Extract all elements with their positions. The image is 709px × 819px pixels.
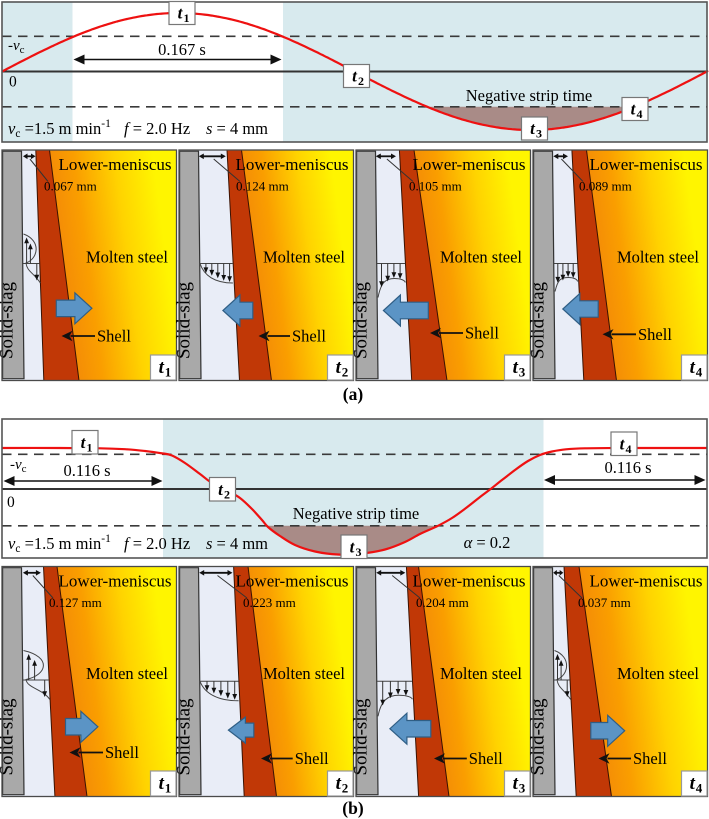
svg-text:4: 4	[696, 781, 703, 796]
svg-text:0.204 mm: 0.204 mm	[416, 595, 469, 610]
svg-text:4: 4	[696, 365, 703, 380]
svg-text:t: t	[513, 773, 519, 794]
svg-text:Molten steel: Molten steel	[86, 664, 168, 683]
svg-text:1: 1	[184, 11, 190, 25]
svg-text:Negative strip time: Negative strip time	[293, 504, 419, 523]
svg-text:3: 3	[356, 545, 362, 559]
svg-text:Lower-meniscus: Lower-meniscus	[590, 155, 703, 174]
svg-text:0.067 mm: 0.067 mm	[44, 179, 97, 194]
svg-text:vc =1.5 m min-1: vc =1.5 m min-1	[8, 118, 111, 140]
svg-text:3: 3	[536, 127, 542, 141]
svg-text:4: 4	[626, 442, 632, 456]
svg-text:0.124 mm: 0.124 mm	[236, 179, 289, 194]
svg-text:Solid-slag: Solid-slag	[351, 698, 372, 776]
svg-text:t: t	[336, 773, 342, 794]
svg-text:Solid-slag: Solid-slag	[528, 698, 549, 776]
svg-text:Negative strip time: Negative strip time	[466, 86, 592, 105]
svg-text:f = 2.0 Hz: f = 2.0 Hz	[124, 119, 190, 138]
svg-text:0: 0	[9, 74, 17, 91]
svg-text:Solid-slag: Solid-slag	[351, 281, 372, 359]
svg-text:0.116 s: 0.116 s	[604, 458, 651, 477]
svg-text:Lower-meniscus: Lower-meniscus	[590, 572, 703, 591]
svg-text:1: 1	[165, 781, 172, 796]
svg-text:Shell: Shell	[295, 749, 329, 768]
svg-text:1: 1	[87, 440, 93, 454]
svg-text:α = 0.2: α = 0.2	[464, 533, 511, 552]
svg-text:0.037 mm: 0.037 mm	[578, 595, 631, 610]
svg-text:Lower-meniscus: Lower-meniscus	[413, 572, 526, 591]
svg-text:2: 2	[358, 74, 364, 88]
svg-text:Lower-meniscus: Lower-meniscus	[236, 155, 349, 174]
svg-text:4: 4	[637, 107, 643, 121]
svg-text:Lower-meniscus: Lower-meniscus	[59, 572, 172, 591]
svg-text:0.127 mm: 0.127 mm	[49, 595, 102, 610]
svg-text:2: 2	[342, 365, 349, 380]
svg-text:Shell: Shell	[105, 743, 139, 762]
svg-text:3: 3	[519, 781, 526, 796]
svg-text:Shell: Shell	[292, 327, 326, 346]
svg-text:Molten steel: Molten steel	[617, 248, 699, 267]
svg-text:Lower-meniscus: Lower-meniscus	[413, 155, 526, 174]
svg-text:s = 4 mm: s = 4 mm	[206, 119, 268, 138]
svg-text:t: t	[690, 357, 696, 378]
svg-text:3: 3	[519, 365, 526, 380]
svg-text:Lower-meniscus: Lower-meniscus	[59, 155, 172, 174]
svg-text:Shell: Shell	[638, 325, 672, 344]
svg-text:(b): (b)	[342, 798, 364, 818]
svg-text:0.167 s: 0.167 s	[158, 40, 206, 59]
svg-text:Molten steel: Molten steel	[440, 664, 522, 683]
svg-text:t: t	[336, 357, 342, 378]
svg-text:s = 4 mm: s = 4 mm	[206, 534, 268, 553]
svg-text:Shell: Shell	[97, 327, 131, 346]
svg-text:f = 2.0 Hz: f = 2.0 Hz	[124, 534, 190, 553]
svg-text:t: t	[690, 773, 696, 794]
svg-text:Lower-meniscus: Lower-meniscus	[236, 572, 349, 591]
svg-text:0: 0	[7, 494, 15, 511]
svg-text:1: 1	[165, 365, 172, 380]
svg-text:vc =1.5 m min-1: vc =1.5 m min-1	[8, 533, 111, 555]
svg-text:Molten steel: Molten steel	[263, 664, 345, 683]
svg-text:t: t	[159, 773, 165, 794]
svg-text:t: t	[159, 357, 165, 378]
svg-text:2: 2	[224, 487, 230, 501]
svg-text:0.105 mm: 0.105 mm	[409, 179, 462, 194]
svg-text:2: 2	[342, 781, 349, 796]
svg-text:Molten steel: Molten steel	[263, 248, 345, 267]
svg-text:Shell: Shell	[633, 749, 667, 768]
svg-text:Shell: Shell	[465, 324, 499, 343]
svg-text:Shell: Shell	[469, 749, 503, 768]
svg-text:(a): (a)	[343, 384, 364, 404]
svg-text:Molten steel: Molten steel	[440, 248, 522, 267]
svg-text:Solid-slag: Solid-slag	[174, 698, 195, 776]
svg-text:Solid-slag: Solid-slag	[174, 281, 195, 359]
svg-text:Molten steel: Molten steel	[617, 664, 699, 683]
svg-text:0.116 s: 0.116 s	[63, 461, 110, 480]
svg-text:0.223 mm: 0.223 mm	[243, 595, 296, 610]
svg-text:Molten steel: Molten steel	[86, 248, 168, 267]
svg-text:0.089 mm: 0.089 mm	[579, 179, 632, 194]
svg-text:Solid-slag: Solid-slag	[528, 281, 549, 359]
svg-text:t: t	[513, 357, 519, 378]
